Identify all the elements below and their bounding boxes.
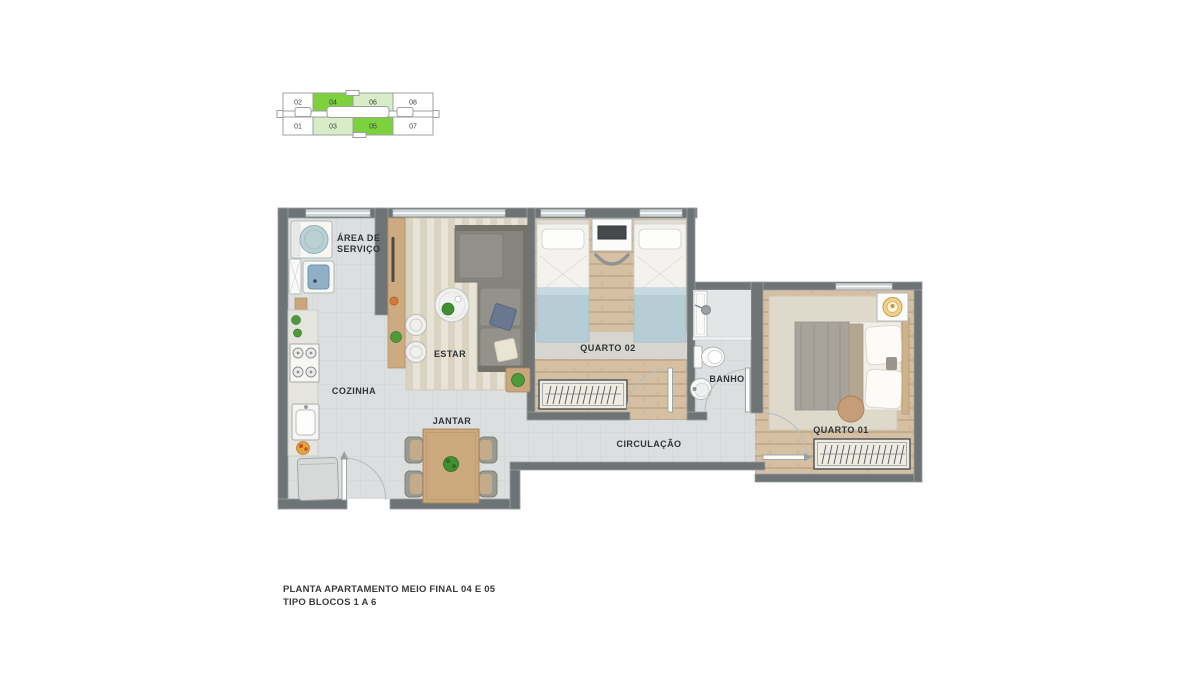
folded-throw-icon	[886, 357, 897, 370]
wall-kitchen-divider	[375, 208, 388, 315]
plant-icon	[391, 332, 402, 343]
vase-icon	[390, 297, 398, 305]
toilet-icon	[694, 346, 725, 368]
wall-right	[914, 282, 922, 482]
key-plan-left-tab	[277, 111, 283, 118]
single-bed-icon	[537, 220, 589, 342]
fruit-bowl-icon	[297, 442, 310, 455]
washing-machine-icon	[291, 221, 332, 258]
single-bed-icon	[634, 220, 686, 342]
key-plan-label-08: 08	[409, 100, 417, 107]
dining-table-icon	[423, 429, 479, 503]
key-plan-label-04: 04	[329, 100, 337, 107]
wall-bath-bedroom1	[751, 282, 763, 413]
living-window-icon	[393, 210, 505, 217]
key-plan-label-07: 07	[409, 124, 417, 131]
stove-icon	[290, 344, 319, 382]
headboard-icon	[902, 318, 909, 414]
nightstand-icon	[877, 293, 908, 321]
room-label-area-servico-2: SERVIÇO	[337, 244, 381, 254]
key-plan-bottom-notch	[353, 133, 366, 138]
key-plan-top-notch	[346, 91, 359, 96]
caption-line-2: TIPO BLOCOS 1 A 6	[283, 597, 377, 608]
refrigerator-icon	[297, 457, 338, 500]
room-label-quarto-01: QUARTO 01	[813, 425, 868, 435]
room-label-quarto-02: QUARTO 02	[580, 343, 635, 353]
coffee-table-icon	[435, 288, 469, 322]
room-label-circulacao: CIRCULAÇÃO	[617, 439, 682, 449]
key-plan-label-06: 06	[369, 100, 377, 107]
key-plan-label-03: 03	[329, 124, 337, 131]
wardrobe-icon	[539, 380, 627, 409]
wall-circulation-bottom	[510, 462, 765, 470]
ironing-board-icon	[289, 259, 301, 294]
shower-icon	[693, 290, 751, 340]
caption: PLANTA APARTAMENTO MEIO FINAL 04 E 05 TI…	[283, 584, 496, 608]
caption-line-1: PLANTA APARTAMENTO MEIO FINAL 04 E 05	[283, 584, 496, 595]
bedroom2-window-right-icon	[640, 210, 682, 217]
pillow-icon	[865, 325, 904, 365]
room-label-banho: BANHO	[709, 374, 744, 384]
service-window-icon	[306, 210, 370, 217]
wall-left	[278, 208, 288, 509]
room-label-jantar: JANTAR	[433, 416, 472, 426]
side-table-icon	[506, 368, 530, 392]
room-label-estar: ESTAR	[434, 349, 466, 359]
key-plan: 02 04 06 08 01 03 05 07	[277, 91, 439, 138]
wardrobe-icon	[814, 439, 910, 469]
laundry-tank-icon	[303, 261, 334, 293]
key-plan-lobby-center	[327, 107, 389, 118]
floor-plan-page: 02 04 06 08 01 03 05 07	[0, 0, 1200, 675]
key-plan-right-tab	[433, 111, 439, 118]
cutting-board-icon	[295, 298, 307, 310]
tv-cabinet-icon	[592, 219, 632, 251]
living-room	[388, 218, 530, 392]
pillow-icon	[865, 369, 904, 409]
kitchen-sink-icon	[292, 404, 319, 440]
key-plan-label-05: 05	[369, 124, 377, 131]
key-plan-label-02: 02	[294, 100, 302, 107]
wall-bedroom2-bottom	[527, 412, 630, 420]
bedroom2-door-threshold	[630, 412, 687, 420]
wall-bedroom1-bottom	[755, 474, 922, 482]
breakfast-bar	[388, 218, 405, 368]
key-plan-lobby-left	[295, 108, 311, 117]
bedroom1-window-icon	[836, 284, 892, 290]
cream-pillow-icon	[494, 338, 518, 362]
key-plan-lobby-right	[397, 108, 413, 117]
key-plan-label-01: 01	[294, 124, 302, 131]
floor-plan-canvas: 02 04 06 08 01 03 05 07	[0, 0, 1200, 675]
room-label-cozinha: COZINHA	[332, 386, 376, 396]
pouf-icon	[838, 396, 864, 422]
room-label-area-servico-1: ÁREA DE	[337, 233, 380, 243]
bathroom-door-threshold	[707, 412, 751, 420]
wall-bath-bottom-pier	[687, 412, 707, 420]
bedroom2-window-left-icon	[541, 210, 585, 217]
